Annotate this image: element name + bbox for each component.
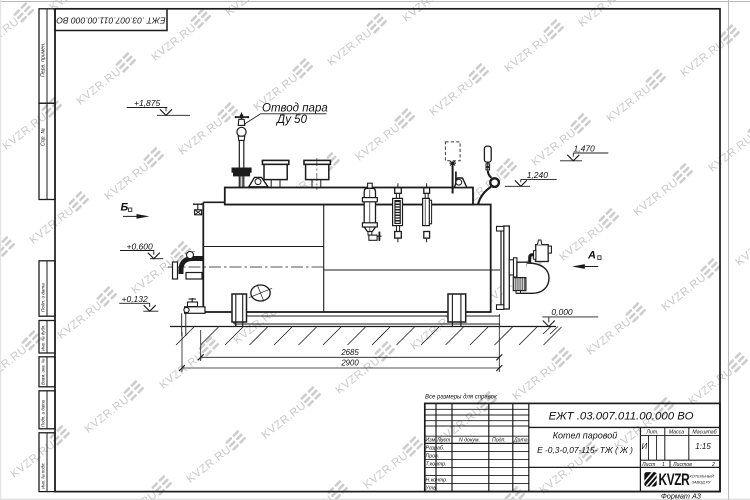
svg-text:Листов: Листов: [672, 462, 692, 468]
svg-text:KVZR.RU: KVZR.RU: [28, 205, 77, 247]
svg-text:KVZR.RU: KVZR.RU: [660, 272, 709, 314]
svg-text:КОТЕЛЬНЫЙ: КОТЕЛЬНЫЙ: [690, 474, 715, 479]
svg-text:KVZR.RU: KVZR.RU: [0, 344, 30, 386]
svg-text:Б: Б: [121, 202, 129, 214]
svg-text:KVZR.RU: KVZR.RU: [354, 122, 403, 164]
svg-text:Все размеры для справок: Все размеры для справок: [425, 394, 498, 400]
svg-text:1: 1: [662, 462, 665, 468]
svg-text:Пров.: Пров.: [426, 454, 440, 460]
svg-text:ЕЖТ .03.007.011.00.000 ВО: ЕЖТ .03.007.011.00.000 ВО: [56, 15, 166, 25]
svg-text:Разраб.: Разраб.: [426, 446, 445, 452]
svg-text:Взам. инв. №: Взам. инв. №: [41, 358, 46, 385]
svg-text:KVZR.RU: KVZR.RU: [185, 444, 234, 486]
svg-text:KVZR.RU: KVZR.RU: [585, 316, 634, 358]
svg-text:2685: 2685: [340, 348, 359, 357]
svg-text:Отвод пара: Отвод пара: [262, 103, 328, 115]
svg-text:ЗАВОД.РУ: ЗАВОД.РУ: [692, 480, 712, 485]
svg-text:1,470: 1,470: [574, 144, 596, 154]
svg-text:+1,875: +1,875: [134, 98, 161, 108]
svg-text:Лит.: Лит.: [645, 430, 658, 436]
svg-text:Ду 50: Ду 50: [275, 114, 308, 126]
svg-text:KVZR.RU: KVZR.RU: [130, 255, 179, 297]
svg-text:Котел паровой: Котел паровой: [553, 431, 618, 441]
svg-text:Е -0,3-0,07-115- ТЖ ( Ж ): Е -0,3-0,07-115- ТЖ ( Ж ): [537, 445, 633, 455]
svg-text:2: 2: [711, 462, 715, 468]
svg-text:0,000: 0,000: [551, 307, 573, 317]
svg-text:Дата: Дата: [513, 438, 528, 444]
svg-text:1,240: 1,240: [527, 170, 549, 180]
svg-text:Инв. № подл.: Инв. № подл.: [41, 462, 46, 489]
svg-text:2900: 2900: [340, 359, 359, 368]
svg-text:Перв. примен.: Перв. примен.: [41, 43, 47, 77]
svg-text:KVZR.RU: KVZR.RU: [75, 66, 124, 108]
svg-text:KVZR.RU: KVZR.RU: [260, 400, 309, 442]
svg-text:KVZR.RU: KVZR.RU: [605, 83, 654, 125]
svg-text:KVZR.RU: KVZR.RU: [503, 33, 552, 75]
svg-text:Подп. и дата: Подп. и дата: [41, 399, 46, 427]
svg-text:KVZR.RU: KVZR.RU: [56, 300, 105, 342]
svg-text:KVZR.RU: KVZR.RU: [103, 161, 152, 203]
svg-text:Подп. и дата: Подп. и дата: [41, 283, 46, 312]
svg-text:KVZR.RU: KVZR.RU: [538, 455, 587, 497]
svg-text:Утв.: Утв.: [426, 486, 438, 492]
svg-text:Н.контр.: Н.контр.: [426, 478, 448, 484]
svg-text:KVZR.RU: KVZR.RU: [111, 489, 160, 500]
svg-text:KVZR.RU: KVZR.RU: [83, 394, 132, 436]
svg-text:KVZR.RU: KVZR.RU: [326, 27, 375, 69]
svg-text:KVZR.RU: KVZR.RU: [558, 222, 607, 264]
svg-text:Спр. №: Спр. №: [41, 128, 47, 146]
svg-text:Лист: Лист: [436, 438, 451, 444]
svg-text:KVZR.RU: KVZR.RU: [428, 77, 477, 119]
svg-text:KVZR.RU: KVZR.RU: [734, 227, 750, 269]
svg-text:KVZR: KVZR: [659, 471, 691, 489]
svg-text:+0,600: +0,600: [127, 242, 154, 252]
svg-text:KVZR.RU: KVZR.RU: [530, 127, 579, 169]
svg-text:KVZR.RU: KVZR.RU: [150, 22, 199, 64]
svg-text:И: И: [642, 442, 648, 451]
svg-text:Масса: Масса: [669, 430, 684, 436]
svg-text:Т.контр.: Т.контр.: [426, 462, 447, 468]
svg-text:Инв. № дубл.: Инв. № дубл.: [41, 325, 46, 351]
svg-text:Масштаб: Масштаб: [692, 430, 717, 436]
svg-text:KVZR.RU: KVZR.RU: [0, 16, 22, 58]
svg-text:KVZR.RU: KVZR.RU: [632, 177, 681, 219]
svg-text:Лист: Лист: [641, 462, 656, 468]
svg-text:+0,132: +0,132: [122, 294, 149, 304]
svg-text:Подп.: Подп.: [492, 438, 506, 444]
svg-text:ЕЖТ .03.007.011.00.000 ВО: ЕЖТ .03.007.011.00.000 ВО: [549, 410, 694, 422]
svg-text:KVZR.RU: KVZR.RU: [511, 361, 560, 403]
svg-text:KVZR.RU: KVZR.RU: [362, 450, 411, 492]
svg-text:KVZR.RU: KVZR.RU: [401, 0, 450, 25]
svg-text:KVZR.RU: KVZR.RU: [177, 116, 226, 158]
svg-text:N докум.: N докум.: [459, 438, 480, 444]
svg-text:KVZR.RU: KVZR.RU: [577, 0, 626, 30]
svg-text:Изм: Изм: [426, 438, 436, 444]
svg-text:Формат А3: Формат А3: [661, 491, 701, 500]
svg-text:1:15: 1:15: [695, 442, 711, 451]
svg-text:KVZR.RU: KVZR.RU: [9, 439, 58, 481]
svg-text:А: А: [587, 250, 596, 262]
